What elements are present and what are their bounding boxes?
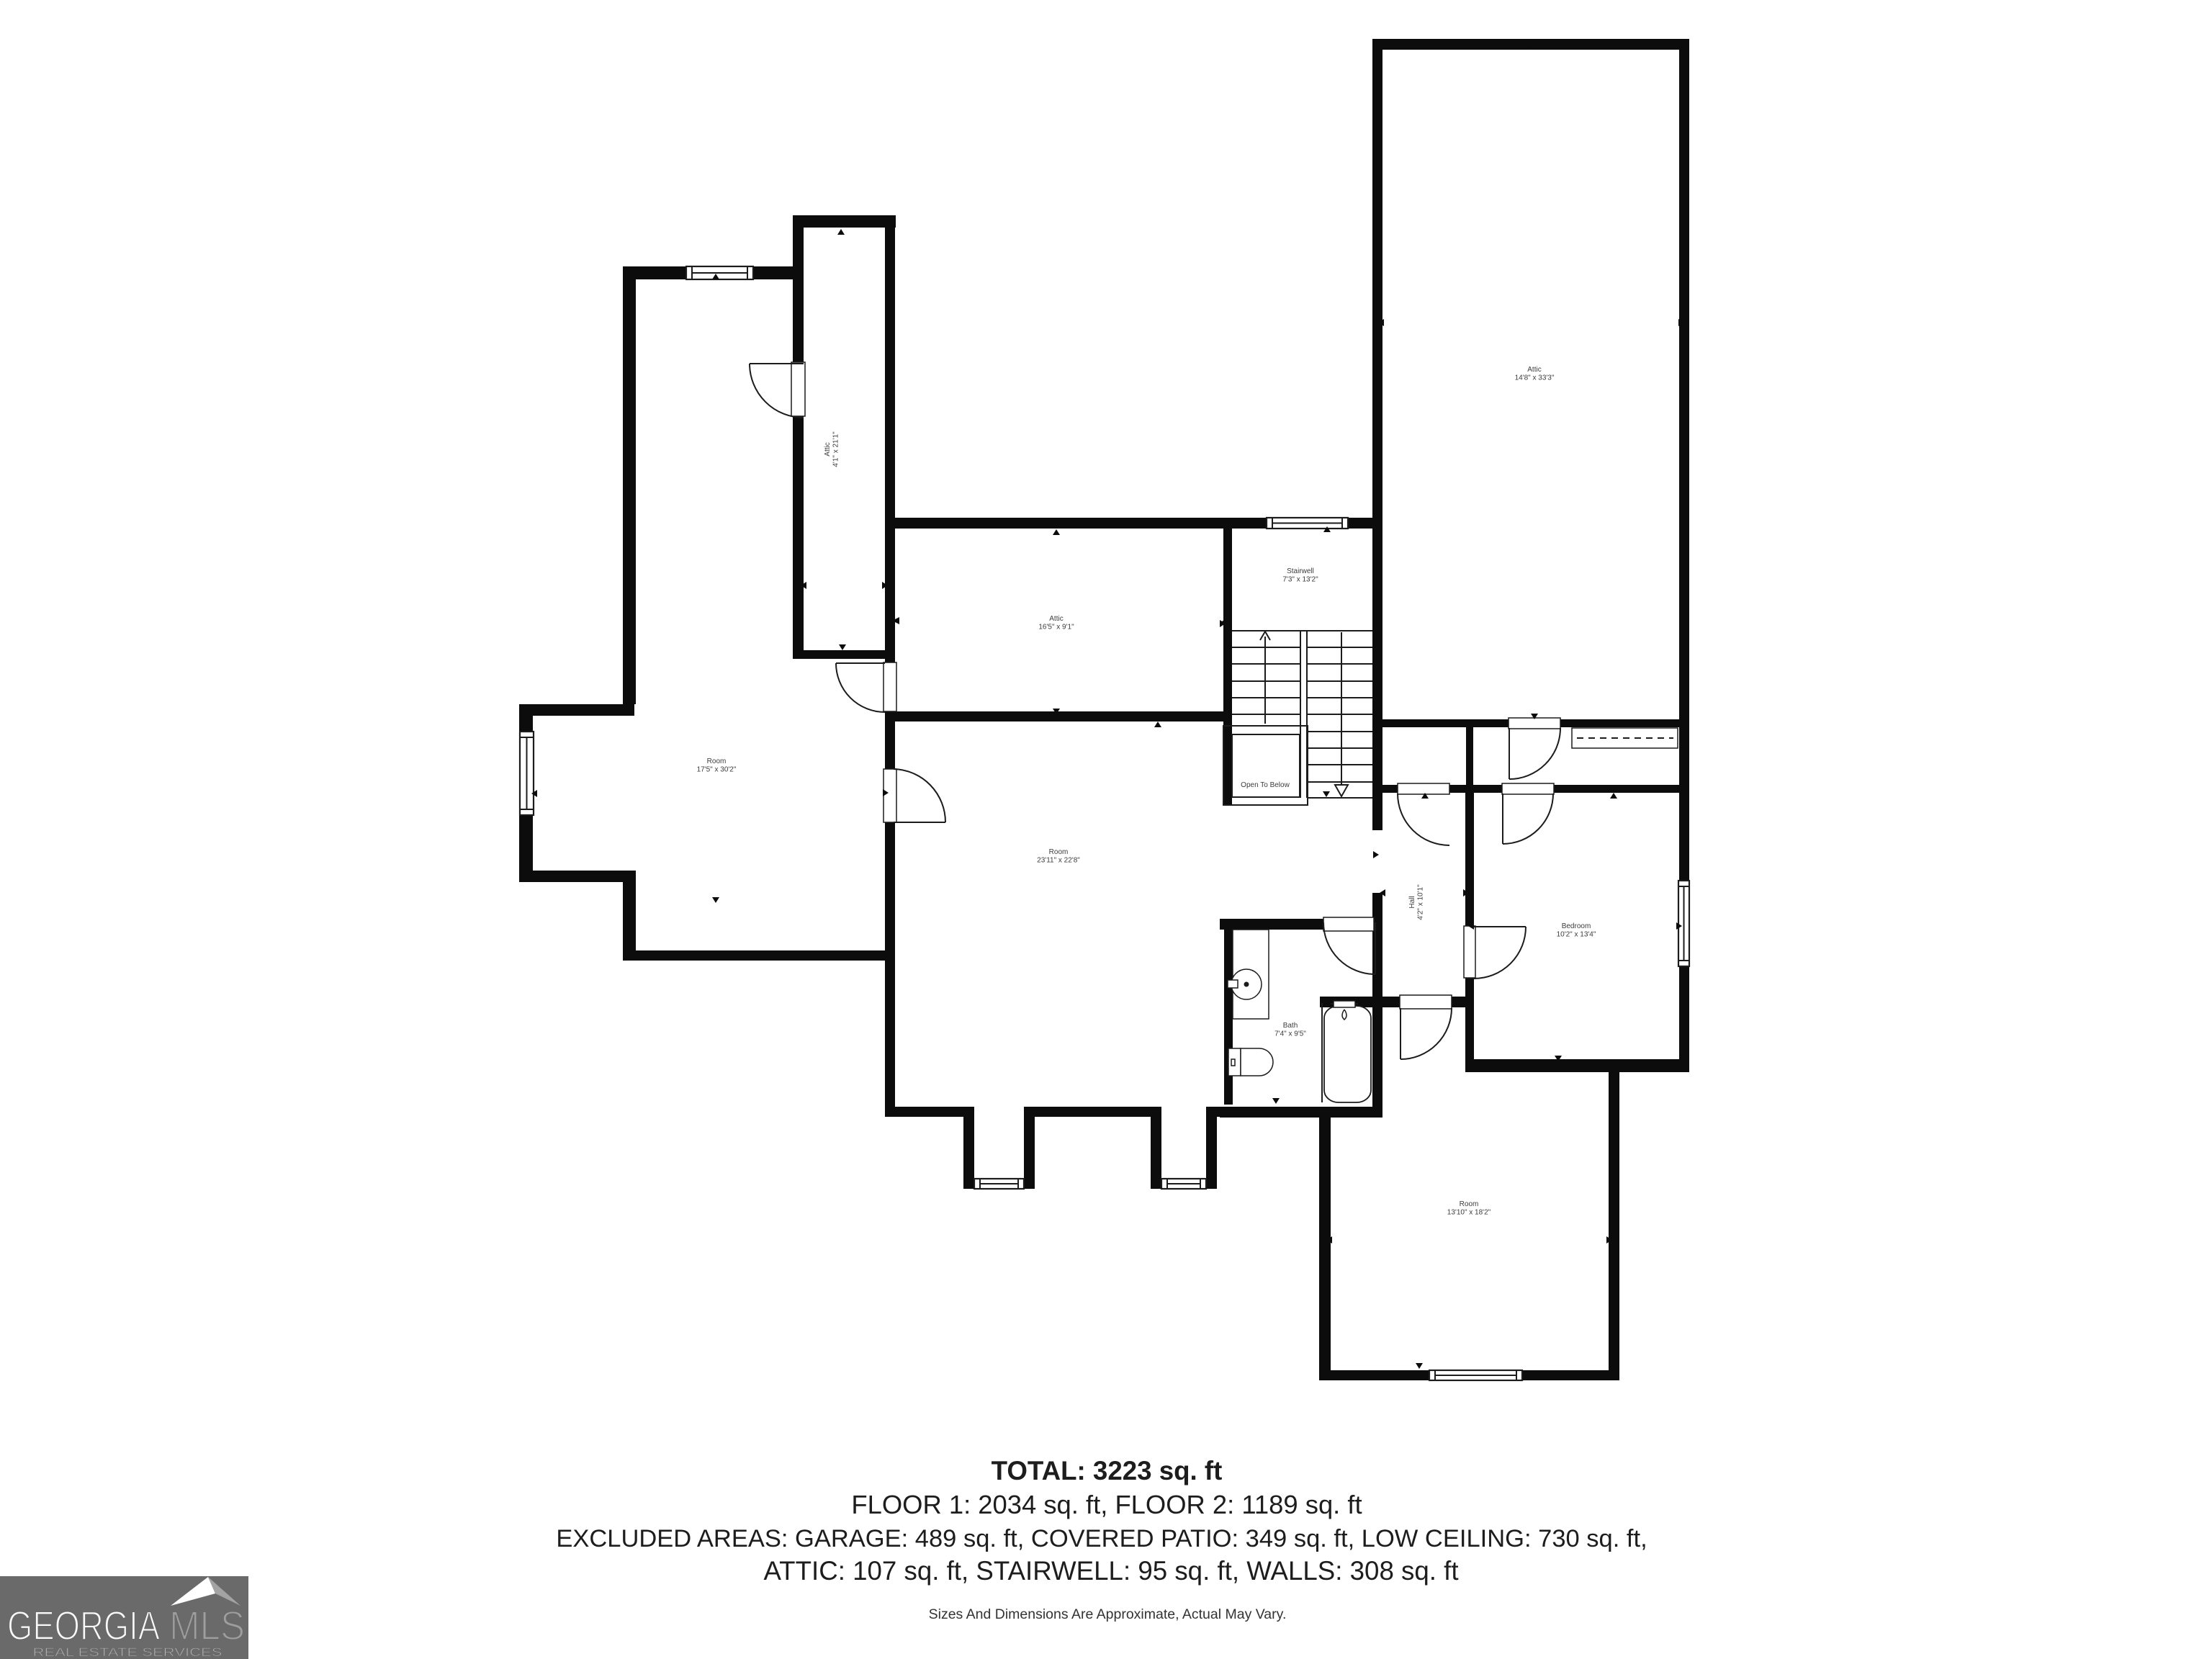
svg-text:Hall: Hall [1408, 896, 1416, 908]
svg-text:Attic: Attic [824, 442, 832, 456]
svg-text:Stairwell: Stairwell [1287, 567, 1314, 575]
svg-text:FLOOR 1: 2034 sq. ft, FLOOR 2:: FLOOR 1: 2034 sq. ft, FLOOR 2: 1189 sq. … [851, 1490, 1362, 1519]
svg-text:EXCLUDED AREAS: GARAGE: 489 sq: EXCLUDED AREAS: GARAGE: 489 sq. ft, COVE… [556, 1525, 1647, 1552]
svg-text:23'11" x 22'8": 23'11" x 22'8" [1037, 857, 1080, 865]
svg-text:REAL ESTATE SERVICES: REAL ESTATE SERVICES [33, 1645, 222, 1659]
svg-text:Room: Room [1049, 848, 1069, 856]
svg-text:4'2" x 10'1": 4'2" x 10'1" [1417, 884, 1425, 920]
svg-text:ATTIC: 107 sq. ft, STAIRWELL:: ATTIC: 107 sq. ft, STAIRWELL: 95 sq. ft,… [763, 1556, 1458, 1586]
svg-text:16'5" x 9'1": 16'5" x 9'1" [1038, 624, 1074, 631]
svg-text:TOTAL: 3223 sq. ft: TOTAL: 3223 sq. ft [992, 1456, 1223, 1485]
svg-text:10'2" x 13'4": 10'2" x 13'4" [1557, 931, 1596, 939]
svg-text:Attic: Attic [1527, 366, 1541, 374]
svg-text:GEORGIA: GEORGIA [7, 1603, 160, 1649]
svg-text:Open To Below: Open To Below [1241, 781, 1290, 789]
svg-text:4'1" x 21'1": 4'1" x 21'1" [832, 431, 840, 467]
svg-text:Bath: Bath [1283, 1022, 1298, 1030]
svg-text:MLS: MLS [169, 1603, 245, 1649]
svg-text:Room: Room [1460, 1200, 1479, 1208]
svg-text:Bedroom: Bedroom [1562, 922, 1591, 930]
svg-text:Room: Room [707, 757, 727, 765]
svg-text:7'3" x 13'2": 7'3" x 13'2" [1282, 576, 1318, 584]
svg-text:14'8" x 33'3": 14'8" x 33'3" [1515, 374, 1555, 382]
svg-text:Attic: Attic [1049, 615, 1063, 623]
svg-text:Sizes And Dimensions Are Appro: Sizes And Dimensions Are Approximate, Ac… [929, 1606, 1287, 1622]
svg-text:13'10" x 18'2": 13'10" x 18'2" [1447, 1209, 1491, 1217]
svg-text:7'4" x 9'5": 7'4" x 9'5" [1274, 1030, 1306, 1038]
svg-text:17'5" x 30'2": 17'5" x 30'2" [697, 766, 737, 774]
